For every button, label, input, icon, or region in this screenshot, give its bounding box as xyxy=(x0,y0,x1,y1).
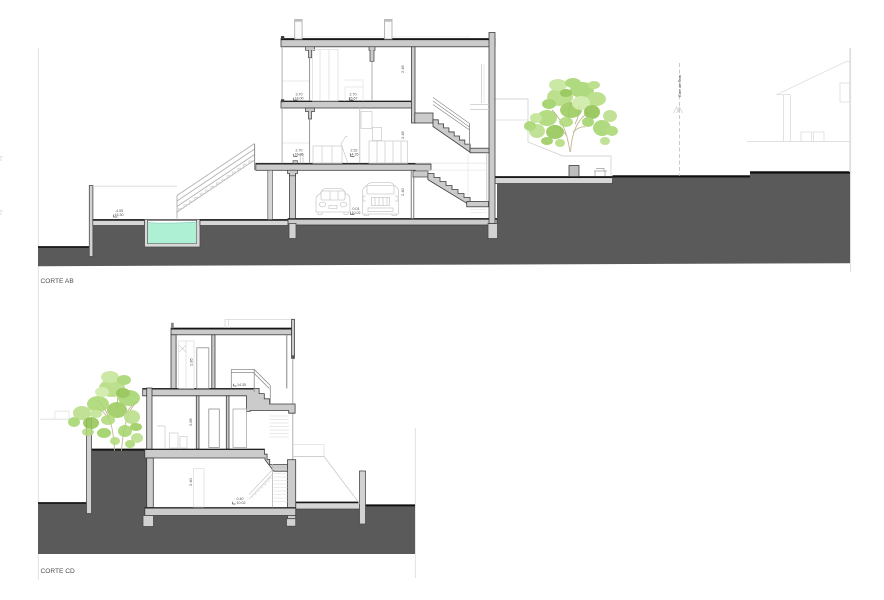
svg-text:10.02: 10.02 xyxy=(352,211,361,215)
svg-text:10.02: 10.02 xyxy=(237,501,246,505)
svg-text:CORTE AB: CORTE AB xyxy=(41,278,75,285)
svg-text:CORTE CD: CORTE CD xyxy=(41,568,76,575)
svg-text:2.40: 2.40 xyxy=(400,187,405,196)
svg-text:15.30: 15.30 xyxy=(115,213,124,217)
svg-text:2.45: 2.45 xyxy=(400,130,405,139)
svg-text:2.85: 2.85 xyxy=(188,417,193,426)
svg-text:14.35: 14.35 xyxy=(237,383,246,387)
svg-text:18.00: 18.00 xyxy=(295,96,304,100)
svg-text:2.85: 2.85 xyxy=(189,357,194,366)
svg-text:16.35: 16.35 xyxy=(295,153,304,157)
svg-text:2.40: 2.40 xyxy=(188,477,193,486)
svg-text:Eixo da Rua: Eixo da Rua xyxy=(677,74,682,97)
svg-text:2.45: 2.45 xyxy=(400,64,405,73)
